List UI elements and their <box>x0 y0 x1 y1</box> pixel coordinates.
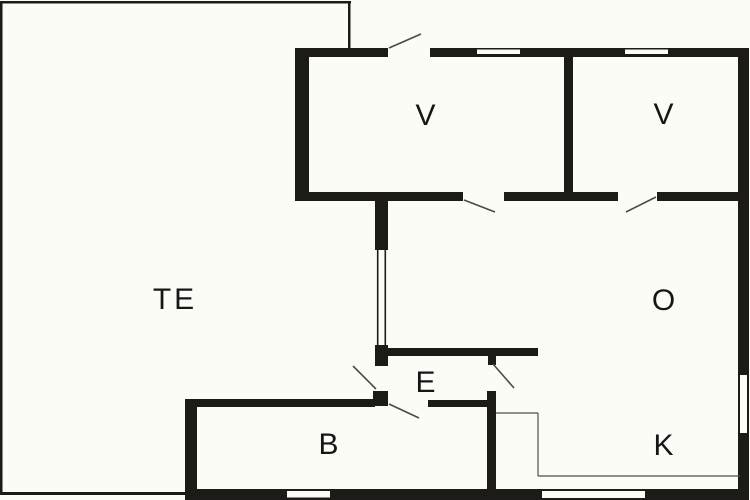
south-wall <box>185 489 749 500</box>
k-west-wall <box>487 391 496 493</box>
hall-wall-upper <box>375 194 388 251</box>
room-label-o: O <box>652 284 678 318</box>
floor-plan-canvas <box>0 0 750 500</box>
b-north-wall-east <box>428 400 490 407</box>
hall-wall-lower <box>375 345 388 366</box>
v2-window <box>625 50 668 55</box>
entry-door-post <box>373 391 388 406</box>
b-west-wall <box>185 399 197 500</box>
te-outline-right <box>348 1 351 50</box>
b-south-window <box>287 491 330 498</box>
room-label-v2: V <box>653 98 676 132</box>
eo-door-post <box>488 355 496 365</box>
v-south-wall-3 <box>657 192 749 201</box>
room-label-v1: V <box>415 99 438 133</box>
v-south-wall-2 <box>504 192 618 201</box>
room-label-e: E <box>415 366 438 400</box>
te-outline-top <box>2 1 351 4</box>
o-east-window <box>740 375 747 433</box>
room-label-k: K <box>653 429 676 463</box>
floor-plan: TE V V O E B K <box>0 0 750 500</box>
room-label-te: TE <box>153 283 197 317</box>
west-house-wall <box>295 48 309 200</box>
te-outline-left <box>0 1 3 495</box>
k-south-window <box>542 491 645 498</box>
te-outline-bottom <box>0 492 188 495</box>
e-north-wall <box>388 348 538 356</box>
v1-window <box>477 50 520 55</box>
v-divider-wall <box>564 53 573 201</box>
b-north-wall-west <box>185 399 375 407</box>
room-label-b: B <box>318 428 341 462</box>
